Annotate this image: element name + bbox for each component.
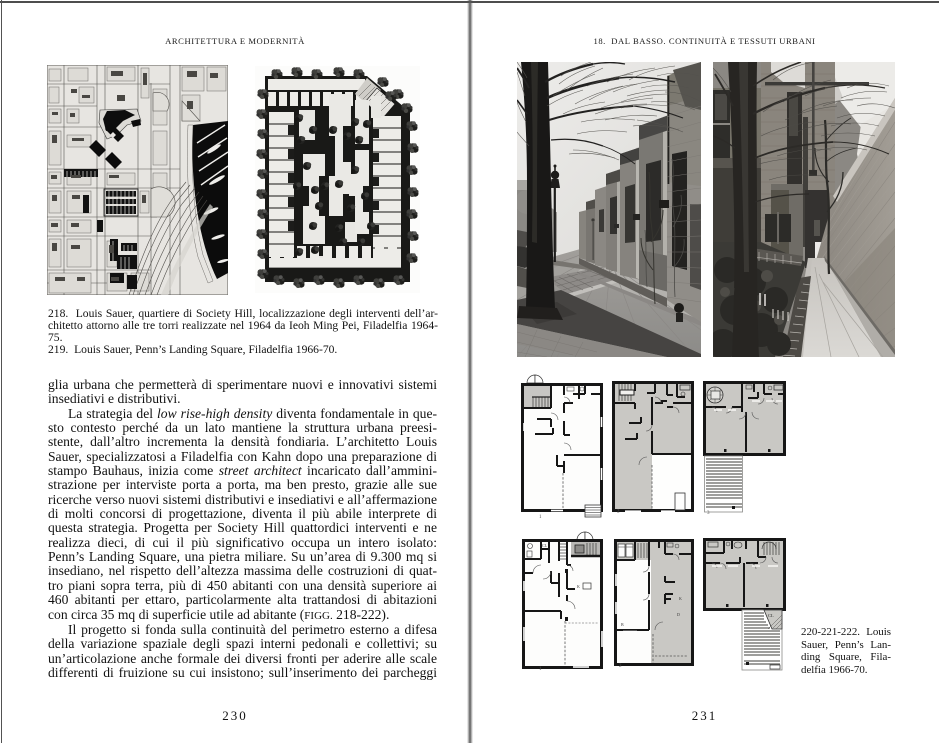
svg-text:K: K [679, 596, 682, 601]
svg-text:B: B [621, 622, 624, 627]
svg-text:CL: CL [768, 613, 774, 618]
svg-text:CL: CL [542, 543, 548, 548]
svg-text:K: K [577, 584, 580, 589]
svg-text:1: 1 [539, 515, 542, 519]
svg-text:D: D [677, 612, 680, 617]
